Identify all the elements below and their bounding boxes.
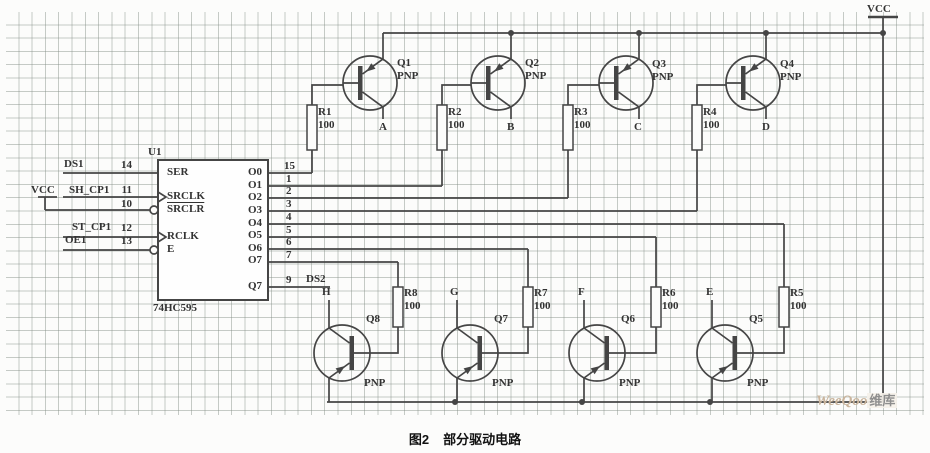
transistor-type-label: PNP bbox=[780, 71, 801, 83]
transistor-type-label: PNP bbox=[747, 377, 768, 389]
pin-number-label: 14 bbox=[92, 159, 132, 171]
resistor-group bbox=[307, 105, 789, 327]
transistor-ref-label: Q8 bbox=[366, 313, 380, 325]
pnp-transistor-icon bbox=[343, 33, 397, 119]
net-label: F bbox=[578, 286, 585, 298]
junction-dots bbox=[452, 30, 886, 405]
pin-number-label: 6 bbox=[286, 236, 292, 248]
resistor-value-label: 100 bbox=[448, 119, 465, 131]
resistor-value-label: 100 bbox=[318, 119, 335, 131]
pin-name-label: RCLK bbox=[167, 230, 199, 242]
junction-dot bbox=[707, 399, 713, 405]
resistor-ref-label: R4 bbox=[703, 106, 716, 118]
pin-number-label: 15 bbox=[284, 160, 295, 172]
pin-name-label: O2 bbox=[234, 191, 262, 203]
vcc-label: VCC bbox=[31, 184, 55, 196]
resistor-value-label: 100 bbox=[662, 300, 679, 312]
transistor-ref-label: Q5 bbox=[749, 313, 763, 325]
resistor-value-label: 100 bbox=[703, 119, 720, 131]
junction-dot bbox=[452, 399, 458, 405]
pin-name-label: O1 bbox=[234, 179, 262, 191]
net-label: DS2 bbox=[306, 273, 326, 285]
net-label: G bbox=[450, 286, 459, 298]
transistor-type-label: PNP bbox=[492, 377, 513, 389]
pin-name-label: O0 bbox=[234, 166, 262, 178]
transistor-ref-label: Q3 bbox=[652, 58, 666, 70]
ic-part-label: 74HC595 bbox=[153, 302, 197, 314]
resistor-icon bbox=[779, 287, 789, 327]
net-label: D bbox=[762, 121, 770, 133]
pin-name-label: O5 bbox=[234, 229, 262, 241]
pnp-transistor-icon bbox=[471, 33, 525, 119]
resistor-ref-label: R7 bbox=[534, 287, 547, 299]
junction-dot bbox=[880, 30, 886, 36]
pin-name-label: O7 bbox=[234, 254, 262, 266]
figure-number: 图2 bbox=[409, 432, 429, 447]
net-label: ST_CP1 bbox=[72, 221, 111, 233]
transistor-ref-label: Q7 bbox=[494, 313, 508, 325]
net-label: DS1 bbox=[64, 158, 84, 170]
junction-dot bbox=[763, 30, 769, 36]
resistor-value-label: 100 bbox=[574, 119, 591, 131]
inversion-bubble-icon bbox=[150, 246, 158, 254]
junction-dot bbox=[579, 399, 585, 405]
transistor-ref-label: Q2 bbox=[525, 57, 539, 69]
pin-number-label: 9 bbox=[286, 274, 292, 286]
transistor-type-label: PNP bbox=[619, 377, 640, 389]
figure-caption: 图2部分驱动电路 bbox=[0, 429, 930, 448]
resistor-ref-label: R2 bbox=[448, 106, 461, 118]
net-label: B bbox=[507, 121, 514, 133]
pnp-transistor-icon bbox=[569, 300, 625, 402]
resistor-ref-label: R1 bbox=[318, 106, 331, 118]
pin-number-label: 13 bbox=[92, 235, 132, 247]
net-label: H bbox=[322, 286, 331, 298]
watermark: WeeQoo维库 bbox=[816, 390, 897, 410]
net-label: C bbox=[634, 121, 642, 133]
pin-name-label: SRCLK bbox=[167, 190, 205, 202]
resistor-icon bbox=[437, 105, 447, 150]
pin-name-label: O6 bbox=[234, 242, 262, 254]
transistor-ref-label: Q4 bbox=[780, 58, 794, 70]
junction-dot bbox=[508, 30, 514, 36]
transistor-type-label: PNP bbox=[652, 71, 673, 83]
resistor-icon bbox=[523, 287, 533, 327]
pnp-transistor-icon bbox=[314, 300, 370, 402]
figure-title: 部分驱动电路 bbox=[443, 432, 521, 447]
pin-name-label: SER bbox=[167, 166, 188, 178]
resistor-ref-label: R5 bbox=[790, 287, 803, 299]
pin-name-label: O3 bbox=[234, 204, 262, 216]
resistor-icon bbox=[563, 105, 573, 150]
pnp-transistor-icon bbox=[697, 300, 753, 402]
vcc-label: VCC bbox=[867, 3, 891, 15]
watermark-suffix: 维库 bbox=[867, 393, 897, 408]
pin-name-label: SRCLR bbox=[167, 203, 204, 215]
resistor-ref-label: R8 bbox=[404, 287, 417, 299]
pin-number-label: 1 bbox=[286, 173, 292, 185]
pin-number-label: 4 bbox=[286, 211, 292, 223]
pin-number-label: 5 bbox=[286, 224, 292, 236]
resistor-ref-label: R6 bbox=[662, 287, 675, 299]
resistor-icon bbox=[307, 105, 317, 150]
resistor-icon bbox=[651, 287, 661, 327]
pin-number-label: 3 bbox=[286, 198, 292, 210]
pin-number-label: 7 bbox=[286, 249, 292, 261]
net-label: OE1 bbox=[65, 234, 86, 246]
net-label: SH_CP1 bbox=[69, 184, 109, 196]
resistor-icon bbox=[393, 287, 403, 327]
inversion-bubble-icon bbox=[150, 206, 158, 214]
resistor-value-label: 100 bbox=[790, 300, 807, 312]
junction-dot bbox=[636, 30, 642, 36]
resistor-value-label: 100 bbox=[404, 300, 421, 312]
net-label: A bbox=[379, 121, 387, 133]
pnp-transistor-icon bbox=[442, 300, 498, 402]
pin-name-label: Q7 bbox=[234, 280, 262, 292]
transistor-type-label: PNP bbox=[397, 70, 418, 82]
schematic-page: U1 74HC595 SER SRCLK SRCLR RCLK E O0 O1 … bbox=[0, 0, 930, 453]
net-label: E bbox=[706, 286, 713, 298]
pin-number-label: 2 bbox=[286, 185, 292, 197]
resistor-icon bbox=[692, 105, 702, 150]
pnp-transistor-icon bbox=[726, 33, 780, 119]
ic-ref-label: U1 bbox=[148, 146, 161, 158]
transistor-ref-label: Q6 bbox=[621, 313, 635, 325]
watermark-brand: WeeQoo bbox=[816, 393, 867, 409]
pnp-transistor-icon bbox=[599, 33, 653, 119]
pin-number-label: 10 bbox=[92, 198, 132, 210]
resistor-ref-label: R3 bbox=[574, 106, 587, 118]
transistor-type-label: PNP bbox=[525, 70, 546, 82]
pin-name-label: E bbox=[167, 243, 174, 255]
pin-name-label: O4 bbox=[234, 217, 262, 229]
transistor-ref-label: Q1 bbox=[397, 57, 411, 69]
resistor-value-label: 100 bbox=[534, 300, 551, 312]
transistor-type-label: PNP bbox=[364, 377, 385, 389]
